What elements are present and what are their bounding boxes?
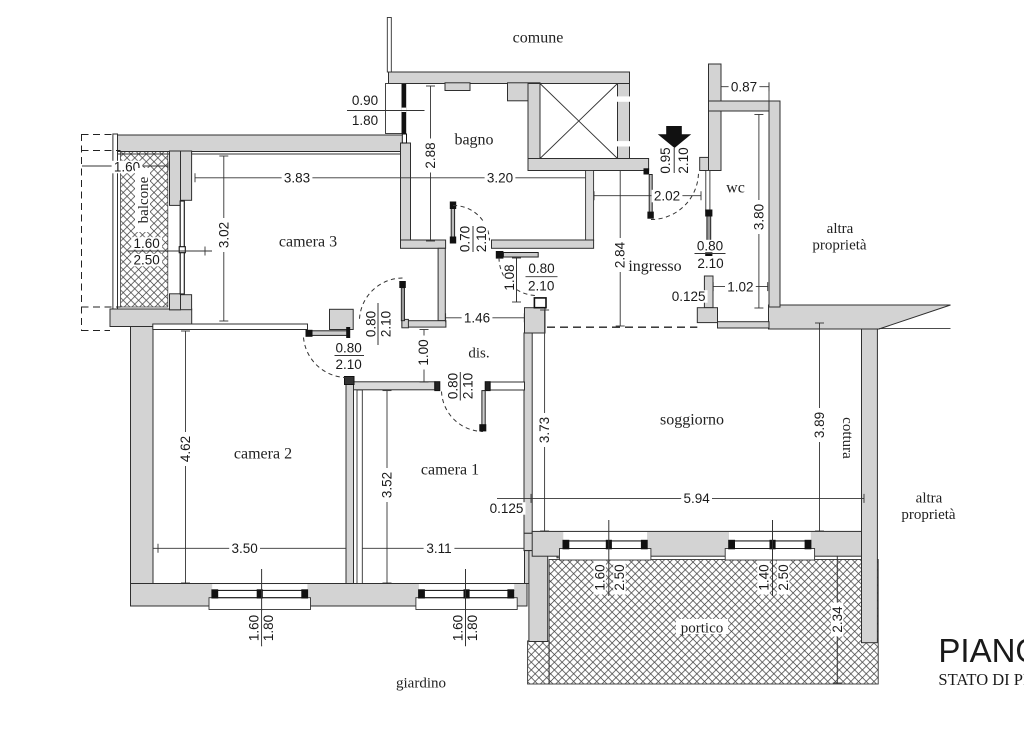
svg-text:2.50: 2.50 <box>776 564 791 590</box>
svg-text:1.46: 1.46 <box>464 311 490 326</box>
svg-text:0.95: 0.95 <box>658 147 673 173</box>
svg-text:ingresso: ingresso <box>628 258 681 275</box>
svg-text:3.80: 3.80 <box>752 204 767 230</box>
svg-text:1.02: 1.02 <box>727 280 753 295</box>
svg-text:2.34: 2.34 <box>830 606 845 633</box>
svg-text:0.87: 0.87 <box>731 80 757 95</box>
svg-text:2.10: 2.10 <box>528 279 554 294</box>
svg-text:3.02: 3.02 <box>216 222 231 248</box>
svg-text:3.52: 3.52 <box>379 472 394 498</box>
svg-text:2.50: 2.50 <box>133 253 159 268</box>
svg-text:1.00: 1.00 <box>416 339 431 365</box>
svg-text:3.73: 3.73 <box>537 417 552 443</box>
svg-text:1.40: 1.40 <box>756 564 771 590</box>
svg-text:dis.: dis. <box>468 346 489 362</box>
svg-text:2.10: 2.10 <box>335 357 361 372</box>
svg-text:1.60: 1.60 <box>133 236 159 251</box>
svg-text:proprietà: proprietà <box>901 507 955 523</box>
svg-text:PIANO: PIANO <box>938 632 1024 669</box>
svg-text:3.20: 3.20 <box>487 171 513 186</box>
svg-text:0.70: 0.70 <box>458 226 473 252</box>
svg-text:0.80: 0.80 <box>335 340 361 355</box>
svg-text:1.08: 1.08 <box>502 264 517 290</box>
svg-text:0.80: 0.80 <box>363 311 378 337</box>
svg-text:camera 3: camera 3 <box>279 234 337 251</box>
svg-text:0.80: 0.80 <box>697 239 723 254</box>
svg-text:cottura: cottura <box>839 417 855 459</box>
svg-text:2.10: 2.10 <box>378 311 393 337</box>
svg-text:proprietà: proprietà <box>812 238 866 254</box>
svg-text:camera 2: camera 2 <box>234 446 292 463</box>
svg-text:bagno: bagno <box>454 132 493 149</box>
svg-text:3.50: 3.50 <box>231 541 257 556</box>
svg-text:0.80: 0.80 <box>528 261 554 276</box>
svg-text:altra: altra <box>827 221 854 237</box>
svg-text:2.10: 2.10 <box>697 256 723 271</box>
svg-text:1.60: 1.60 <box>246 615 261 641</box>
svg-text:balcone: balcone <box>136 176 152 223</box>
svg-text:2.10: 2.10 <box>461 373 476 399</box>
svg-text:STATO DI PROGETTO: STATO DI PROGETTO <box>938 670 1024 689</box>
svg-text:0.125: 0.125 <box>490 501 524 516</box>
svg-text:portico: portico <box>681 621 724 637</box>
svg-text:2.02: 2.02 <box>654 189 680 204</box>
svg-text:1.80: 1.80 <box>465 615 480 641</box>
svg-text:1.80: 1.80 <box>352 113 378 128</box>
svg-text:comune: comune <box>513 30 564 47</box>
svg-text:soggiorno: soggiorno <box>660 412 724 429</box>
svg-text:wc: wc <box>726 180 745 197</box>
svg-text:5.94: 5.94 <box>683 491 710 506</box>
svg-text:2.84: 2.84 <box>613 241 628 268</box>
svg-text:1.60: 1.60 <box>450 615 465 641</box>
svg-text:0.125: 0.125 <box>672 289 706 304</box>
svg-text:0.80: 0.80 <box>446 373 461 399</box>
svg-text:2.50: 2.50 <box>612 564 627 590</box>
svg-text:giardino: giardino <box>396 676 446 692</box>
svg-text:1.60: 1.60 <box>592 564 607 590</box>
svg-text:0.90: 0.90 <box>352 93 378 108</box>
svg-text:2.88: 2.88 <box>423 142 438 168</box>
svg-text:camera 1: camera 1 <box>421 462 479 479</box>
svg-text:1.80: 1.80 <box>261 615 276 641</box>
svg-text:altra: altra <box>916 491 943 507</box>
svg-text:2.10: 2.10 <box>474 226 489 252</box>
svg-text:3.89: 3.89 <box>812 412 827 438</box>
svg-text:4.62: 4.62 <box>178 436 193 462</box>
svg-text:3.83: 3.83 <box>284 171 310 186</box>
svg-text:3.11: 3.11 <box>426 541 451 556</box>
svg-text:2.10: 2.10 <box>676 147 691 173</box>
